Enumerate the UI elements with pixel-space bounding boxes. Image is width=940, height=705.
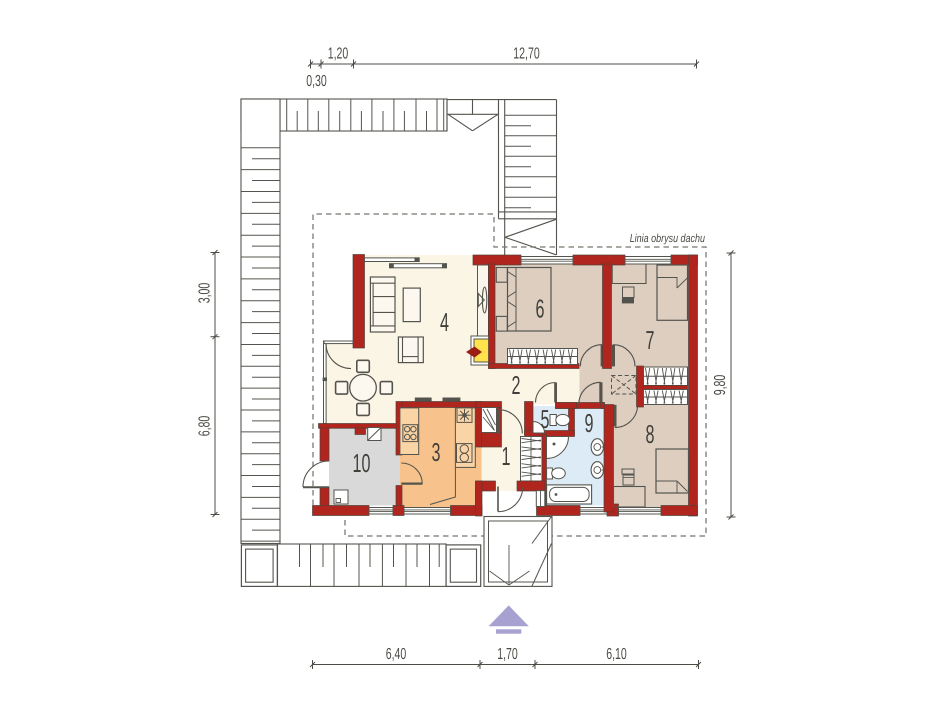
svg-text:6,10: 6,10: [606, 646, 627, 663]
svg-text:1,20: 1,20: [328, 46, 349, 63]
svg-text:5: 5: [541, 404, 550, 434]
svg-text:0,30: 0,30: [306, 73, 327, 90]
svg-text:4: 4: [440, 307, 449, 337]
svg-text:8: 8: [646, 419, 655, 449]
svg-text:9,80: 9,80: [712, 375, 729, 396]
svg-text:6,40: 6,40: [386, 646, 407, 663]
svg-text:3: 3: [432, 437, 441, 467]
svg-text:12,70: 12,70: [513, 46, 539, 63]
svg-text:7: 7: [646, 325, 655, 355]
svg-text:1,70: 1,70: [497, 646, 518, 663]
svg-text:3,00: 3,00: [197, 283, 214, 304]
svg-text:9: 9: [585, 408, 594, 438]
svg-text:Linia obrysu dachu: Linia obrysu dachu: [630, 233, 706, 245]
svg-text:10: 10: [353, 448, 371, 478]
svg-text:2: 2: [512, 370, 521, 400]
svg-text:6: 6: [536, 294, 545, 324]
svg-text:6,80: 6,80: [197, 416, 214, 437]
svg-text:1: 1: [502, 441, 511, 471]
